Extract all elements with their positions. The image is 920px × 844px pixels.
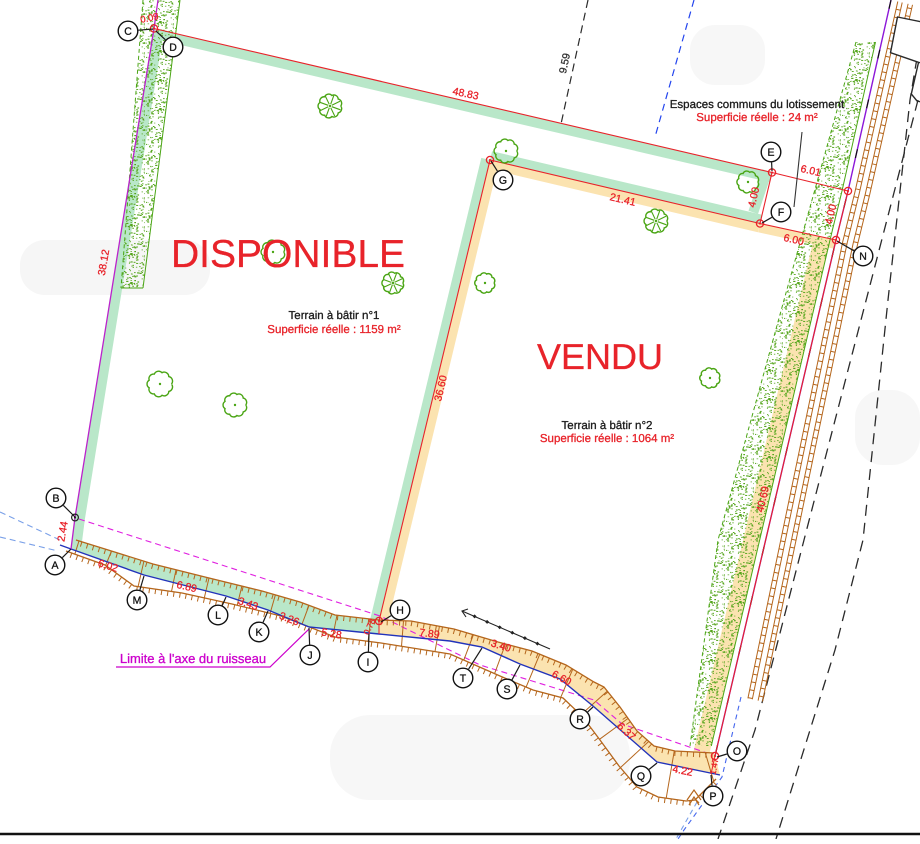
svg-text:Q: Q <box>637 771 645 783</box>
svg-text:D: D <box>169 42 177 54</box>
svg-text:E: E <box>767 147 774 159</box>
svg-text:S: S <box>503 684 510 696</box>
svg-text:C: C <box>124 26 132 38</box>
svg-text:VENDU: VENDU <box>537 336 663 377</box>
svg-text:R: R <box>576 714 584 726</box>
svg-text:M: M <box>133 595 142 607</box>
svg-text:P: P <box>709 791 716 803</box>
svg-text:N: N <box>859 251 867 263</box>
svg-text:A: A <box>51 560 58 572</box>
svg-text:Terrain à bâtir n°1: Terrain à bâtir n°1 <box>289 310 380 322</box>
svg-text:T: T <box>460 673 467 685</box>
svg-text:7.89: 7.89 <box>418 627 440 641</box>
svg-text:I: I <box>367 657 370 669</box>
svg-text:J: J <box>307 650 312 662</box>
svg-text:Superficie réelle : 1159 m²: Superficie réelle : 1159 m² <box>267 324 401 336</box>
svg-text:B: B <box>52 493 59 505</box>
svg-text:Limite à l'axe du ruisseau: Limite à l'axe du ruisseau <box>120 651 266 666</box>
svg-text:F: F <box>778 207 784 219</box>
svg-text:Terrain à bâtir n°2: Terrain à bâtir n°2 <box>562 420 653 432</box>
svg-text:Superficie réelle : 24 m²: Superficie réelle : 24 m² <box>696 112 818 124</box>
svg-text:G: G <box>499 175 507 187</box>
svg-text:K: K <box>255 627 262 639</box>
svg-text:Espaces communs du lotissement: Espaces communs du lotissement <box>670 99 845 111</box>
svg-text:L: L <box>215 610 221 622</box>
svg-text:O: O <box>733 746 741 758</box>
svg-text:H: H <box>396 605 404 617</box>
svg-text:Superficie réelle : 1064 m²: Superficie réelle : 1064 m² <box>540 433 674 445</box>
svg-text:DISPONIBLE: DISPONIBLE <box>171 233 405 276</box>
